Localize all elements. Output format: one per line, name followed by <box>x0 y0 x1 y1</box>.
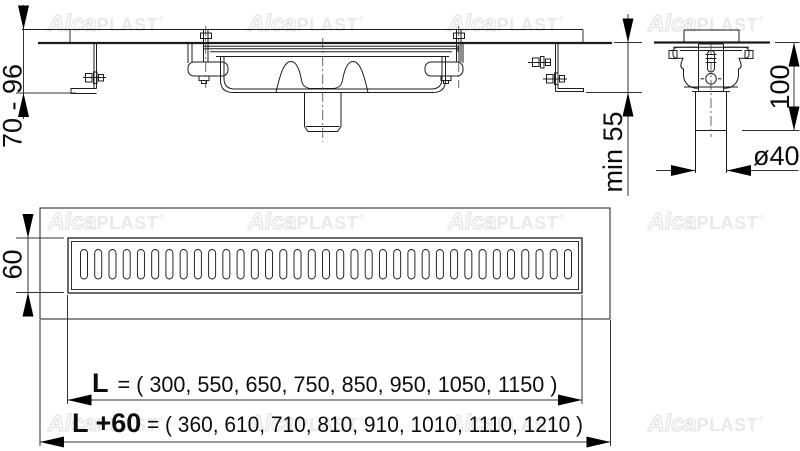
grate-slot <box>251 250 258 280</box>
alcaplast-watermark: AlcaPLAST® <box>247 10 364 36</box>
trap-height-label: 100 <box>765 64 795 109</box>
grate-slot <box>436 250 443 280</box>
watermark-plast: PLAST <box>97 213 159 233</box>
grate-slot <box>379 250 386 280</box>
watermark-plast: PLAST <box>97 15 159 35</box>
alcaplast-watermark: AlcaPLAST® <box>47 208 164 234</box>
overall-length-text: L +60= ( 360, 610, 710, 810, 910, 1010, … <box>72 408 583 438</box>
watermark-plast: PLAST <box>497 15 559 35</box>
grate-slot <box>123 250 130 280</box>
grate-slot <box>294 250 301 280</box>
watermark-plast: PLAST <box>697 213 759 233</box>
grate-width-label: 60 <box>0 249 28 279</box>
watermark-plast: PLAST <box>697 15 759 35</box>
grate-slot <box>209 250 216 280</box>
watermark-alca: Alca <box>47 208 97 234</box>
grate-slot <box>365 250 372 280</box>
dimension-trap-height: 100 <box>742 43 800 131</box>
technical-drawing-page: AlcaPLAST®AlcaPLAST®AlcaPLAST®AlcaPLAST®… <box>0 0 800 451</box>
grate-slot <box>81 250 88 280</box>
channel-length-text: L= ( 300, 550, 650, 750, 850, 950, 1050,… <box>92 368 558 398</box>
watermark-alca: Alca <box>647 10 697 36</box>
dimension-pipe-diameter: ø40 <box>656 141 800 176</box>
alcaplast-watermark: AlcaPLAST® <box>447 10 564 36</box>
alcaplast-watermark: AlcaPLAST® <box>647 10 764 36</box>
overall-length-symbol: L +60 <box>72 408 141 438</box>
channel-trough-outline <box>221 57 446 93</box>
drain-channel-technical-drawing: AlcaPLAST®AlcaPLAST®AlcaPLAST®AlcaPLAST®… <box>0 0 800 451</box>
grate-slot <box>508 250 515 280</box>
grate-slot <box>137 250 144 280</box>
watermark-alca: Alca <box>647 410 697 436</box>
grate-slot <box>394 250 401 280</box>
grate-slot <box>408 250 415 280</box>
watermark-alca: Alca <box>447 10 497 36</box>
alcaplast-watermark: AlcaPLAST® <box>447 208 564 234</box>
watermark-registered-icon: ® <box>758 15 764 24</box>
watermark-plast: PLAST <box>697 415 759 435</box>
grate-slot <box>351 250 358 280</box>
watermark-registered-icon: ® <box>158 213 164 222</box>
grate-slot <box>479 250 486 280</box>
channel-length-values: = ( 300, 550, 650, 750, 850, 950, 1050, … <box>118 372 558 397</box>
alcaplast-watermark: AlcaPLAST® <box>647 208 764 234</box>
watermark-registered-icon: ® <box>758 213 764 222</box>
grate-slot <box>237 250 244 280</box>
grate-slot <box>266 250 273 280</box>
watermark-alca: Alca <box>47 10 97 36</box>
grate-slot <box>308 250 315 280</box>
alcaplast-watermark: AlcaPLAST® <box>47 10 164 36</box>
dimension-min-floor-depth: min 55 <box>586 14 642 196</box>
watermark-registered-icon: ® <box>758 415 764 424</box>
watermark-registered-icon: ® <box>358 15 364 24</box>
channel-length-symbol: L <box>92 368 109 398</box>
grate-slots <box>81 250 572 280</box>
pipe-diameter-label: ø40 <box>753 141 800 171</box>
grate-slot <box>280 250 287 280</box>
grate-slot <box>337 250 344 280</box>
grate-slot <box>422 250 429 280</box>
grate-frame-inner <box>72 242 579 290</box>
min-floor-depth-label: min 55 <box>598 111 628 192</box>
side-view-channel-elevation <box>22 26 612 142</box>
watermark-registered-icon: ® <box>558 213 564 222</box>
grate-slot <box>550 250 557 280</box>
grate-slot <box>109 250 116 280</box>
watermark-registered-icon: ® <box>158 15 164 24</box>
installation-height-label: 70 - 96 <box>0 64 28 148</box>
grate-slot <box>223 250 230 280</box>
alcaplast-watermark: AlcaPLAST® <box>647 410 764 436</box>
grate-slot <box>166 250 173 280</box>
grate-slot <box>536 250 543 280</box>
grate-slot <box>152 250 159 280</box>
grate-slot <box>465 250 472 280</box>
watermark-registered-icon: ® <box>558 15 564 24</box>
watermark-registered-icon: ® <box>358 213 364 222</box>
watermark-plast: PLAST <box>497 213 559 233</box>
grate-slot <box>180 250 187 280</box>
left-mounting-bracket <box>71 44 106 94</box>
grate-slot <box>194 250 201 280</box>
watermark-alca: Alca <box>647 208 697 234</box>
grate-slot <box>95 250 102 280</box>
watermark-alca: Alca <box>247 10 297 36</box>
grate-frame-outer <box>68 238 582 293</box>
watermark-plast: PLAST <box>297 15 359 35</box>
dimension-channel-length: L= ( 300, 550, 650, 750, 850, 950, 1050,… <box>68 295 583 406</box>
watermark-alca: Alca <box>247 208 297 234</box>
grate-slot <box>522 250 529 280</box>
grate-slot <box>451 250 458 280</box>
alcaplast-watermark: AlcaPLAST® <box>247 208 364 234</box>
right-mounting-bracket <box>528 44 584 92</box>
grate-slot <box>493 250 500 280</box>
trough-baffles <box>276 62 368 93</box>
grate-slot <box>323 250 330 280</box>
grate-slot <box>564 250 571 280</box>
watermark-alca: Alca <box>447 208 497 234</box>
watermark-plast: PLAST <box>297 213 359 233</box>
overall-length-values: = ( 360, 610, 710, 810, 910, 1010, 1110,… <box>147 412 583 437</box>
